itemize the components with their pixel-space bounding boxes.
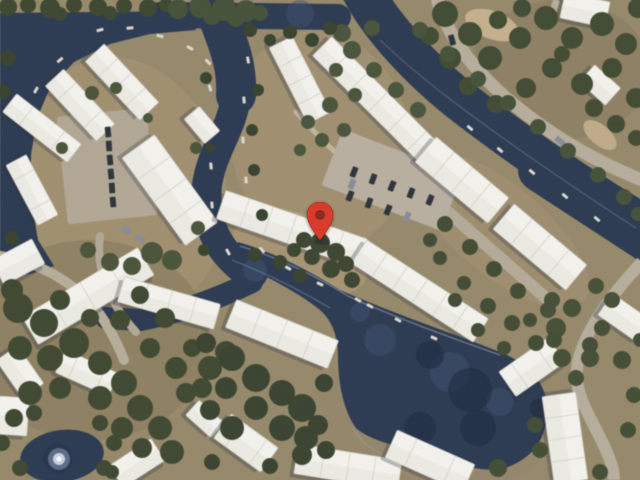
- pin-body: [307, 202, 333, 240]
- map-viewport[interactable]: [0, 0, 640, 480]
- photo-grain-overlay: [0, 0, 640, 480]
- pin-dot: [315, 210, 325, 220]
- satellite-canvas: [0, 0, 640, 480]
- map-marker-pin[interactable]: [307, 202, 333, 240]
